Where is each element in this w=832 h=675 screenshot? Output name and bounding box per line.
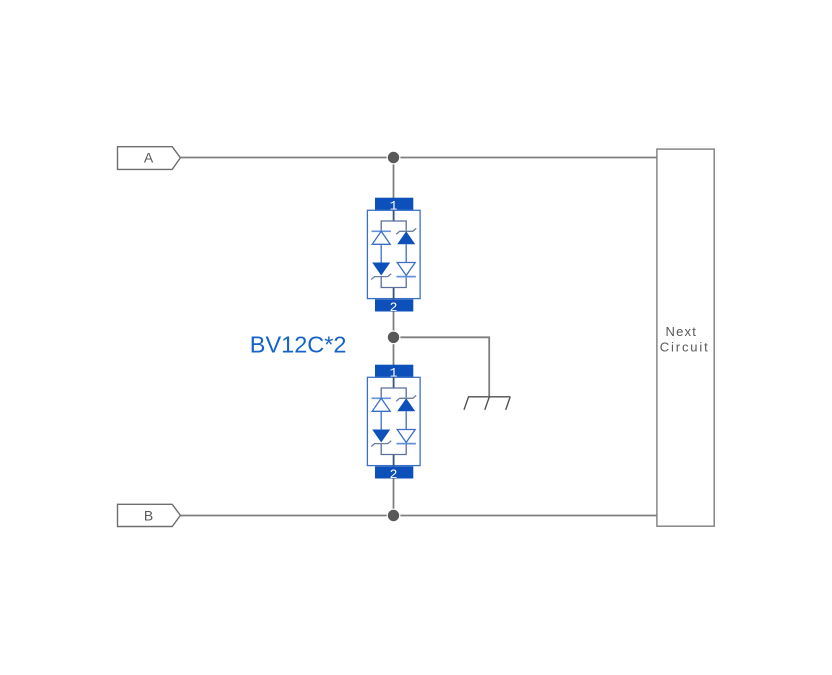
svg-text:Circuit: Circuit: [660, 339, 710, 354]
svg-text:A: A: [144, 150, 154, 166]
svg-text:B: B: [144, 507, 153, 523]
svg-text:BV12C*2: BV12C*2: [250, 332, 347, 358]
svg-text:2: 2: [390, 300, 398, 315]
svg-text:Next: Next: [666, 324, 698, 339]
svg-text:1: 1: [390, 199, 398, 214]
